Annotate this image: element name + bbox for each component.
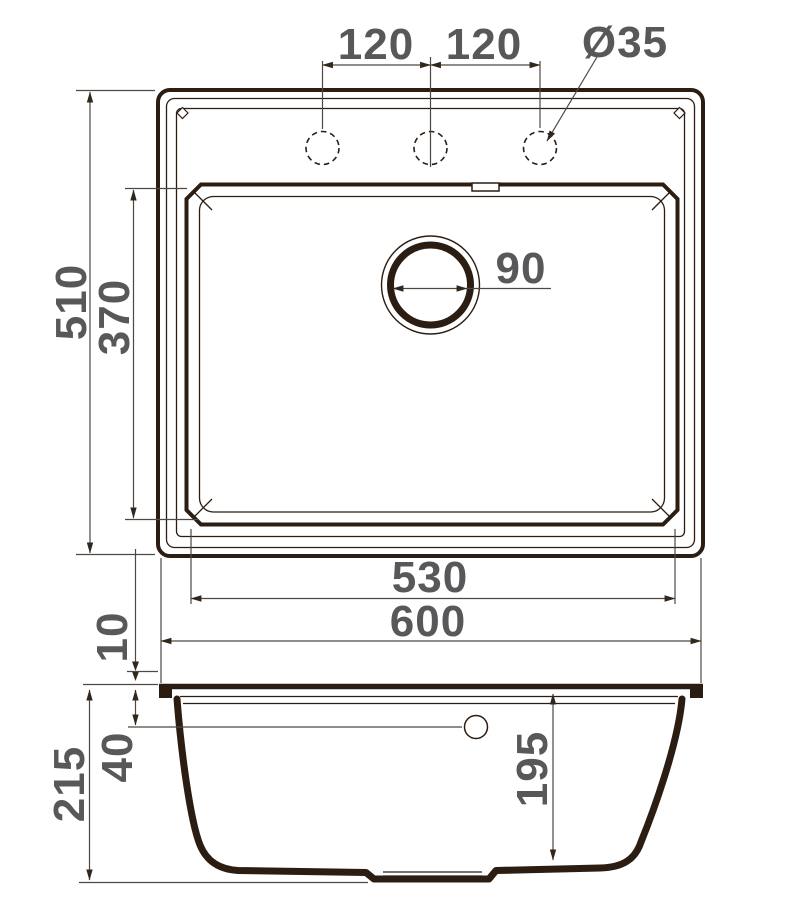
rim-lip-right — [690, 689, 703, 699]
bowl-corner-fold-br — [652, 499, 671, 518]
dim-label-rim-height: 10 — [88, 612, 137, 663]
overflow-slot — [472, 183, 499, 191]
dim-label-overall-width: 600 — [390, 597, 466, 646]
dim-label-faucet-spacing-left: 120 — [338, 20, 414, 69]
side-view — [159, 687, 703, 880]
sink-technical-drawing: 120 120 Ø35 510 370 90 530 600 — [0, 0, 805, 907]
drain-recess-circle — [382, 236, 480, 334]
bowl-corner-fold-tl — [193, 191, 212, 210]
drawing-canvas: 120 120 Ø35 510 370 90 530 600 — [0, 0, 805, 907]
dim-label-bowl-inner-depth: 195 — [508, 731, 557, 807]
dim-label-faucet-spacing-right: 120 — [446, 20, 522, 69]
rim-lip-left — [159, 689, 172, 699]
bowl-corner-fold-tr — [652, 191, 671, 210]
overflow-hole-section — [465, 716, 488, 739]
dim-label-overflow-depth: 40 — [93, 732, 142, 783]
dim-label-drain-diameter: 90 — [496, 244, 547, 293]
dim-label-faucet-hole-diameter: Ø35 — [582, 18, 668, 67]
top-view-dimensions: 120 120 Ø35 510 370 90 530 600 — [47, 18, 701, 683]
rim-height-arrow-lower — [132, 672, 139, 682]
dim-label-bowl-depth: 370 — [90, 279, 139, 355]
faucet-hole-left — [306, 132, 339, 165]
bowl-corner-fold-bl — [193, 499, 212, 518]
faucet-hole-right — [524, 132, 557, 165]
dim-label-overall-height: 215 — [45, 746, 94, 822]
dim-label-bowl-width: 530 — [392, 553, 468, 602]
dim-label-overall-depth: 510 — [47, 264, 96, 340]
drain-ring — [391, 245, 471, 325]
bowl-section-wall — [177, 699, 682, 879]
